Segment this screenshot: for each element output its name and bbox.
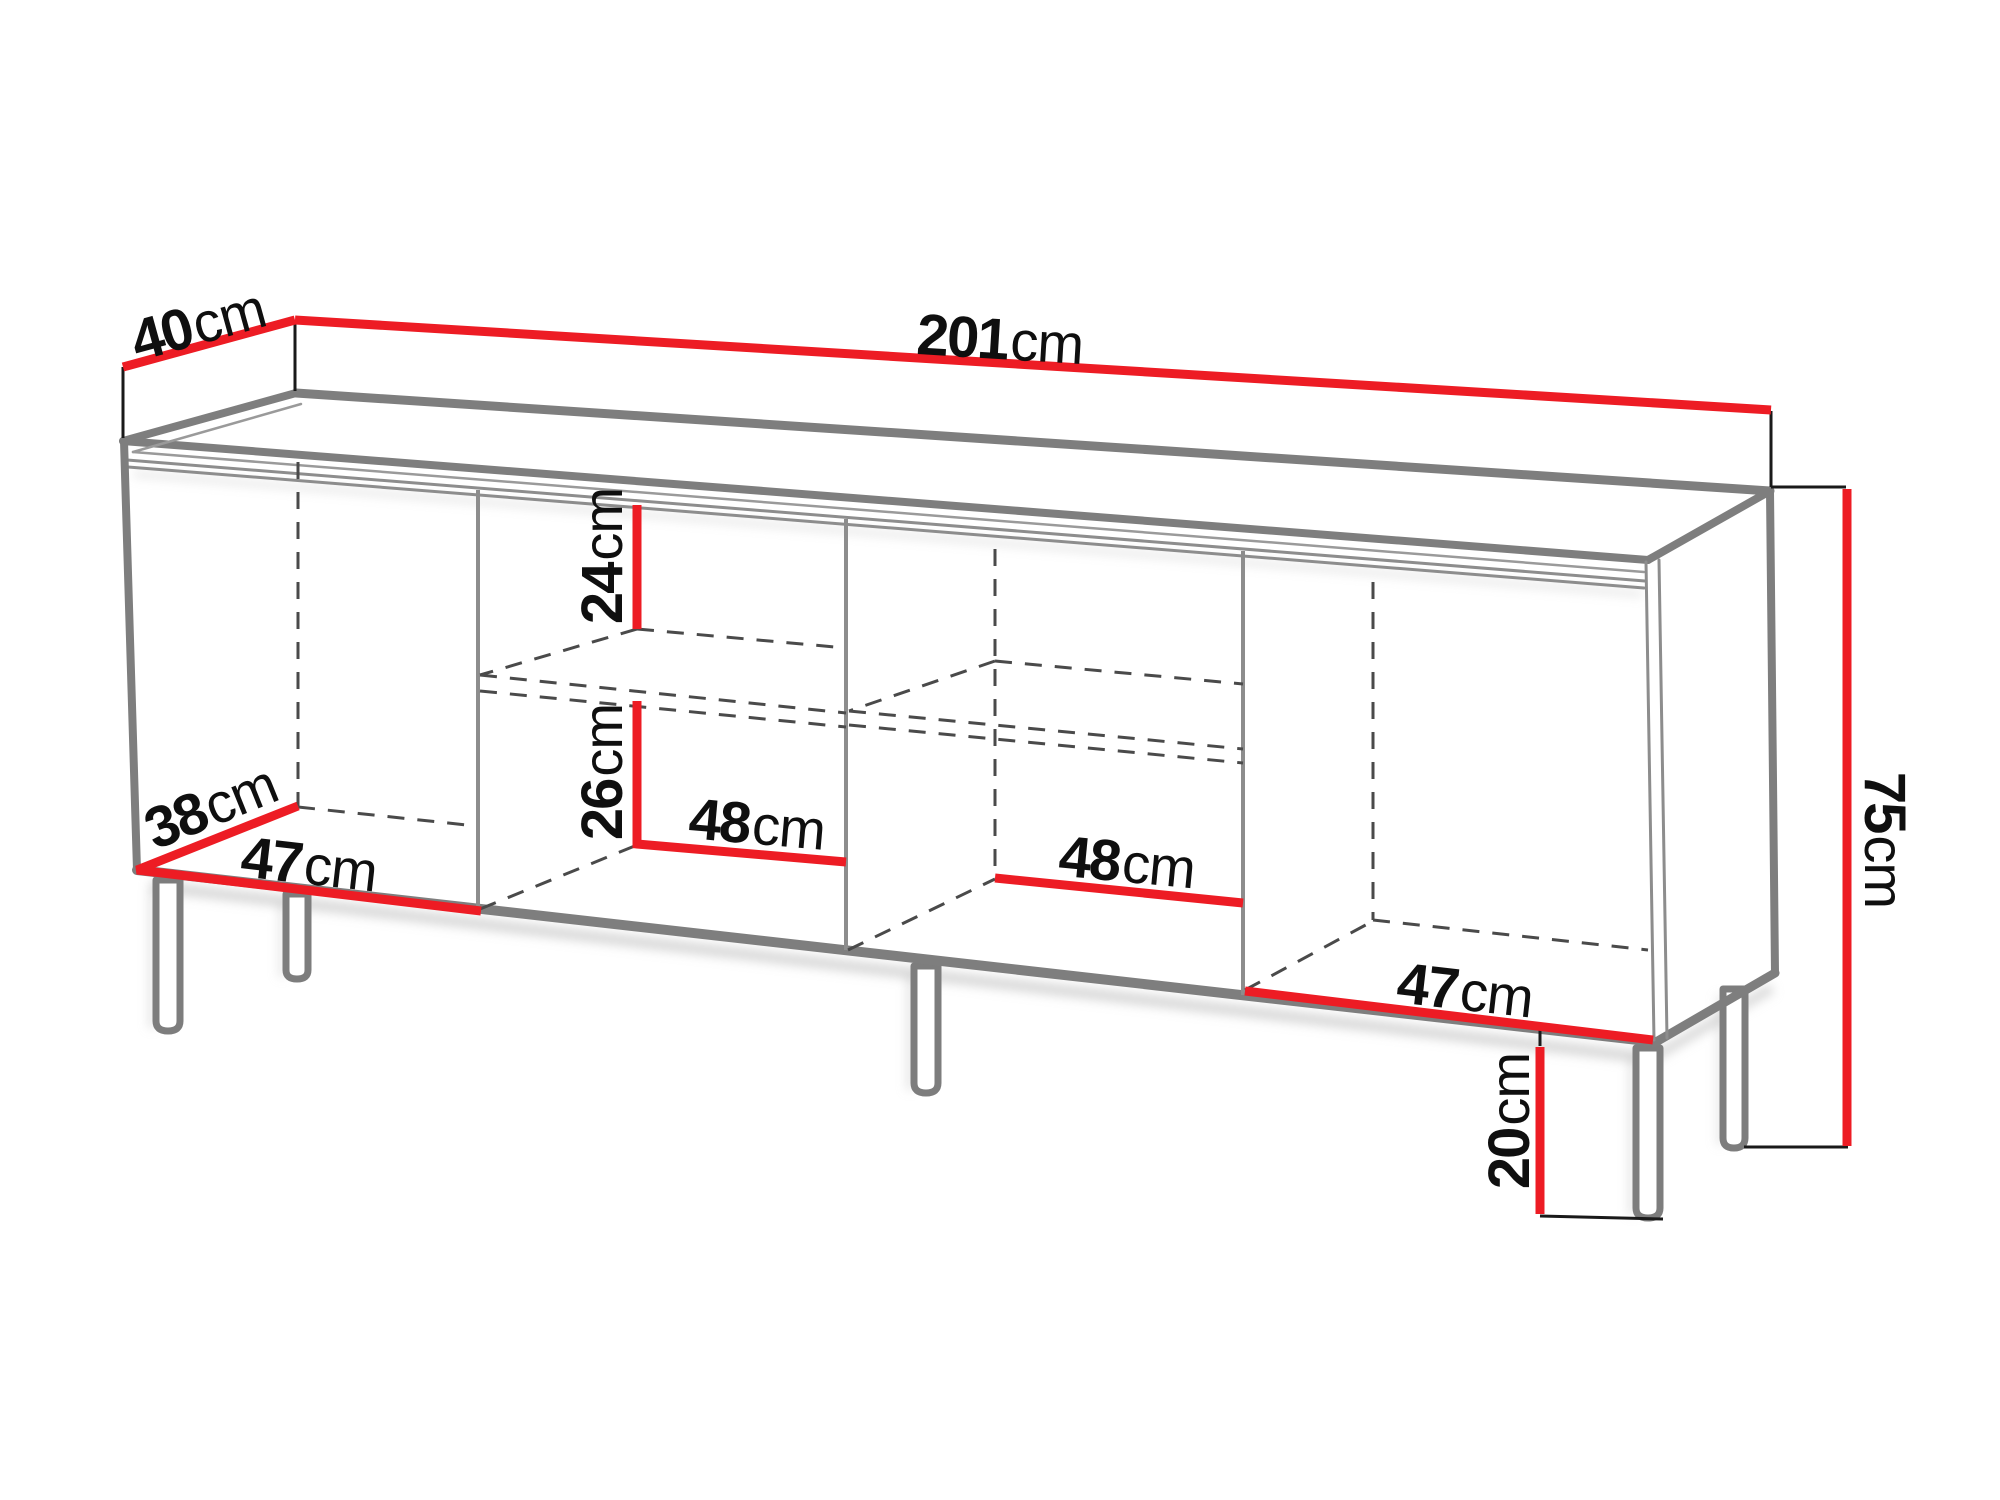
dim-unit: cm	[571, 704, 634, 777]
dim-value: 24	[570, 564, 635, 625]
dim-value: 47	[1394, 951, 1461, 1022]
dim-unit: cm	[1853, 835, 1916, 908]
dim-value: 75	[1852, 772, 1917, 833]
dim-label-leg-height: 20cm	[1481, 1053, 1539, 1189]
dim-unit: cm	[1119, 831, 1197, 901]
dim-label-upper-shelf-gap: 24cm	[574, 488, 632, 624]
dim-unit: cm	[1457, 959, 1536, 1030]
dim-unit: cm	[1009, 309, 1085, 376]
leg-rear-right	[1723, 989, 1745, 1148]
dim-label-middle-width-left: 48cm	[687, 790, 828, 860]
dim-value: 201	[915, 302, 1010, 372]
dim-value: 47	[238, 825, 305, 896]
dim-unit: cm	[571, 488, 634, 561]
dimension-extension-ticks	[123, 321, 1848, 1219]
dim-value: 26	[570, 780, 635, 841]
dim-label-lower-shelf-gap: 26cm	[574, 704, 632, 840]
cabinet-line-drawing	[0, 0, 2000, 1500]
dimension-lines	[123, 320, 1847, 1214]
dim-label-right-section-width: 47cm	[1394, 954, 1536, 1027]
leg-middle	[914, 966, 938, 1093]
dim-label-left-section-width: 47cm	[238, 828, 380, 901]
dim-label-total-height: 75cm	[1855, 772, 1913, 908]
dim-value: 48	[686, 786, 752, 856]
dim-unit: cm	[301, 833, 380, 904]
dim-unit: cm	[1478, 1053, 1541, 1126]
dim-unit: cm	[750, 793, 828, 862]
dim-label-middle-width-right: 48cm	[1056, 828, 1197, 899]
leg-rear-left	[286, 894, 308, 979]
dim-value: 48	[1056, 824, 1122, 895]
leg-front-right	[1636, 1048, 1660, 1218]
furniture-dimension-diagram: 40cm 201cm 75cm 24cm 26cm 48cm 48cm 38cm…	[0, 0, 2000, 1500]
leg-front-left	[156, 880, 180, 1031]
dim-value: 20	[1477, 1129, 1542, 1190]
dim-label-total-width: 201cm	[915, 306, 1085, 374]
